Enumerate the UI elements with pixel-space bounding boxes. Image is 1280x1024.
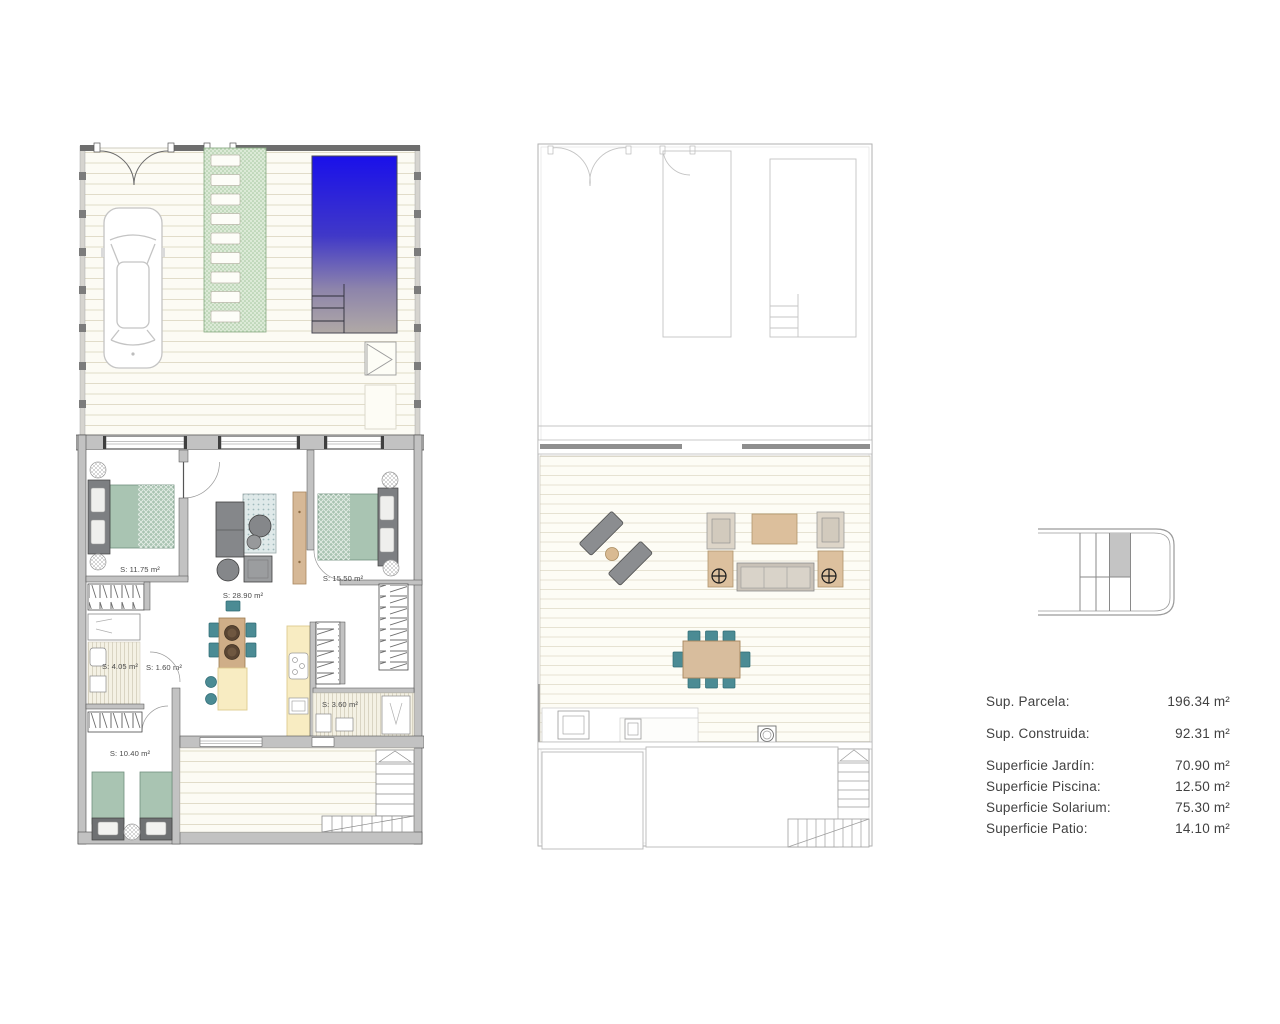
area-value: 70.90 m²	[1175, 758, 1230, 773]
area-row-piscina: Superficie Piscina: 12.50 m²	[986, 779, 1230, 794]
washbasin-icon	[90, 676, 106, 692]
facade-windows	[103, 436, 384, 449]
room-label-bedroom-1: S: 11.75 m²	[120, 565, 160, 574]
double-bed-icon	[88, 480, 174, 554]
pouf-small-icon	[247, 535, 261, 549]
area-label: Superficie Jardín:	[986, 758, 1095, 773]
area-row-patio: Superficie Patio: 14.10 m²	[986, 821, 1230, 836]
stairs-up-icon	[838, 749, 869, 807]
room-label-bedroom-3: S: 10.40 m²	[110, 749, 151, 758]
shower-tray-icon	[382, 696, 410, 734]
area-label: Sup. Parcela:	[986, 694, 1070, 709]
area-value: 196.34 m²	[1167, 694, 1230, 709]
area-value: 12.50 m²	[1175, 779, 1230, 794]
solarium-shell	[538, 440, 872, 742]
room-label-bedroom-2: S: 15.50 m²	[323, 574, 364, 583]
area-summary: Sup. Parcela: 196.34 m² Sup. Construida:…	[986, 694, 1230, 842]
area-row-jardin: Superficie Jardín: 70.90 m²	[986, 758, 1230, 773]
bathroom-2: S: 3.60 m²	[313, 688, 414, 737]
bbq-icon	[758, 726, 776, 744]
stairs-run-icon	[788, 819, 869, 847]
ground-floor-plan: S: 11.75 m² S: 28.90 m²	[76, 132, 424, 852]
kitchen-counter	[287, 626, 310, 738]
garden-deck	[79, 143, 421, 436]
room-label-bathroom-1: S: 4.05 m²	[102, 662, 138, 671]
patio	[180, 736, 424, 832]
solarium-floor-plan	[532, 134, 880, 852]
area-label: Superficie Patio:	[986, 821, 1088, 836]
double-bed-icon	[318, 488, 398, 566]
area-label: Sup. Construida:	[986, 726, 1090, 741]
floor-plan-sheet: S: 11.75 m² S: 28.90 m²	[0, 0, 1280, 1024]
sink-icon	[289, 698, 308, 714]
room-label-hall: S: 1.60 m²	[146, 663, 182, 672]
area-label: Superficie Piscina:	[986, 779, 1101, 794]
appliance-icon	[625, 719, 641, 739]
sofa-icon	[216, 502, 244, 557]
shower-tray-icon	[88, 614, 140, 640]
single-bed-icon	[140, 772, 172, 840]
sink-icon	[558, 711, 589, 739]
cooktop-icon	[289, 653, 308, 679]
pouf-icon	[249, 515, 271, 537]
sofa-icon	[737, 563, 814, 591]
room-label-living: S: 28.90 m²	[223, 591, 264, 600]
plot-strip-outline	[1038, 529, 1174, 615]
deck-bench	[365, 385, 396, 429]
area-row-parcela: Sup. Parcela: 196.34 m²	[986, 694, 1230, 709]
garden-path	[204, 148, 266, 332]
stepping-stones	[211, 155, 240, 322]
armchair-icon	[707, 513, 735, 549]
armchair-icon	[817, 512, 844, 548]
single-bed-icon	[92, 772, 124, 840]
room-label-bathroom-2: S: 3.60 m²	[322, 700, 358, 709]
area-label: Superficie Solarium:	[986, 800, 1111, 815]
dining-table-icon	[683, 641, 740, 678]
side-table-icon	[606, 548, 619, 561]
car-icon	[101, 208, 165, 368]
area-row-construida: Sup. Construida: 92.31 m²	[986, 726, 1230, 741]
sideboard-icon	[293, 492, 306, 584]
pool	[312, 156, 397, 333]
washbasin-icon	[336, 718, 353, 731]
coffee-table-icon	[752, 514, 797, 544]
round-table-icon	[217, 559, 239, 581]
area-value: 14.10 m²	[1175, 821, 1230, 836]
toilet-icon	[316, 714, 331, 732]
outdoor-shower-icon	[365, 342, 396, 375]
location-key-plan	[1038, 524, 1188, 620]
stairs-run-icon	[322, 816, 414, 832]
parasol-table-icon	[708, 551, 733, 587]
parasol-table-icon	[818, 551, 843, 587]
unit-highlight	[1110, 533, 1131, 577]
stairs-up-icon	[376, 750, 414, 816]
lower-rooms-outline	[542, 747, 869, 849]
area-value: 75.30 m²	[1175, 800, 1230, 815]
area-row-solarium: Superficie Solarium: 75.30 m²	[986, 800, 1230, 815]
area-value: 92.31 m²	[1175, 726, 1230, 741]
side-table-icon	[244, 556, 272, 582]
